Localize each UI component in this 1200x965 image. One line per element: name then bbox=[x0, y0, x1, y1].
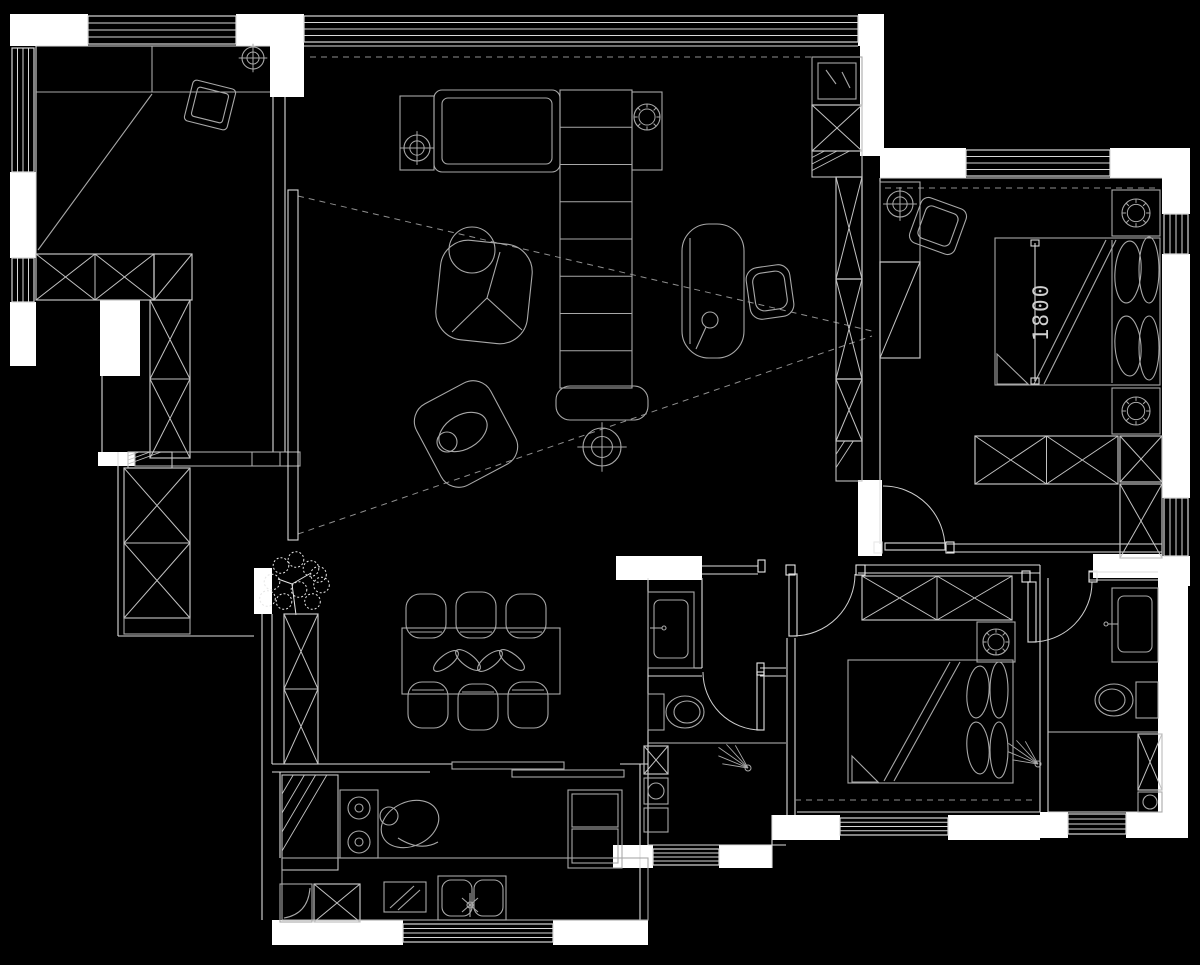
wall-pier-right-2 bbox=[1162, 254, 1190, 498]
floor-plan-canvas: 1800 bbox=[0, 0, 1200, 965]
wall-pier-right-1 bbox=[1162, 148, 1190, 214]
wall-pier-kitchen-bottom-right bbox=[553, 920, 648, 945]
master-bed-width-label: 1800 bbox=[1029, 283, 1053, 342]
wall-pier-study-bottom bbox=[100, 300, 140, 376]
wall-pier-study-living bbox=[236, 14, 304, 46]
wall-pier-bath1-bottom-left bbox=[613, 845, 653, 868]
wall-pier-left-2 bbox=[10, 302, 36, 366]
wall-pier-top-left bbox=[10, 14, 88, 46]
wall-pier-bath2-bottom-right bbox=[1126, 812, 1188, 838]
wall-pier-master-top-left bbox=[880, 148, 966, 178]
wall-pier-left-1 bbox=[10, 172, 36, 258]
wall-pier-kitchen-bottom-left bbox=[272, 920, 403, 945]
wall-pier-bed2-bottom-left bbox=[772, 815, 840, 840]
wall-pier-bath2-bottom-left bbox=[1040, 812, 1068, 838]
wall-pier-bath1-top bbox=[616, 556, 702, 580]
wall-pier-living-master bbox=[860, 14, 884, 156]
wall-pier-hall-column bbox=[858, 480, 882, 556]
floor-plan: 1800 bbox=[0, 0, 1200, 965]
wall-pier-bed2-bottom-right bbox=[948, 815, 1040, 840]
wall-pier-screen-top bbox=[270, 45, 304, 97]
wall-pier-bath1-bottom-right bbox=[719, 845, 772, 868]
